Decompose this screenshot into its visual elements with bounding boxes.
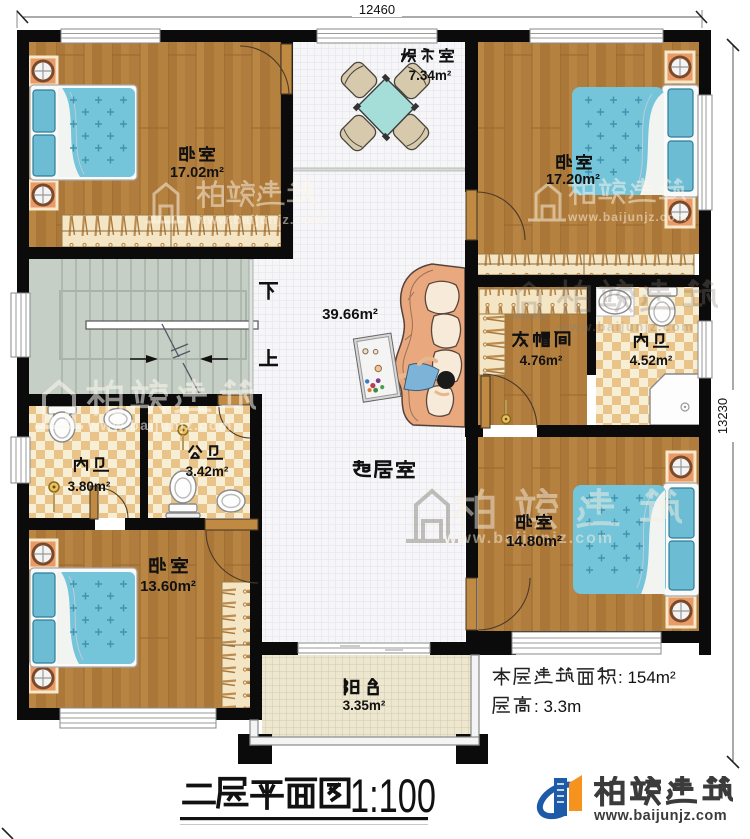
- svg-text:39.66m²: 39.66m²: [322, 306, 378, 323]
- svg-text:: 154m²: : 154m²: [618, 668, 676, 687]
- svg-text:14.80m²: 14.80m²: [506, 533, 562, 550]
- svg-text:3.42m²: 3.42m²: [186, 464, 229, 479]
- svg-text:: 3.3m: : 3.3m: [534, 697, 581, 716]
- svg-text:17.20m²: 17.20m²: [546, 172, 600, 188]
- svg-text:1:100: 1:100: [350, 769, 436, 822]
- svg-text:www.baijunjz.com: www.baijunjz.com: [87, 417, 233, 433]
- svg-text:12460: 12460: [359, 2, 395, 17]
- svg-text:www.baijunjz.com: www.baijunjz.com: [557, 319, 694, 334]
- svg-text:7.34m²: 7.34m²: [409, 68, 452, 83]
- svg-text:www.baijunjz.com: www.baijunjz.com: [567, 210, 688, 224]
- svg-text:13230: 13230: [715, 398, 730, 434]
- svg-text:17.02m²: 17.02m²: [170, 165, 224, 181]
- svg-text:www.baijunjz.com: www.baijunjz.com: [593, 808, 727, 824]
- svg-text:4.76m²: 4.76m²: [520, 353, 563, 368]
- svg-text:13.60m²: 13.60m²: [140, 578, 196, 595]
- svg-text:www.baijunjz.com: www.baijunjz.com: [195, 212, 324, 227]
- svg-text:4.52m²: 4.52m²: [630, 353, 673, 368]
- svg-text:3.35m²: 3.35m²: [343, 698, 386, 713]
- svg-text:3.80m²: 3.80m²: [68, 479, 111, 494]
